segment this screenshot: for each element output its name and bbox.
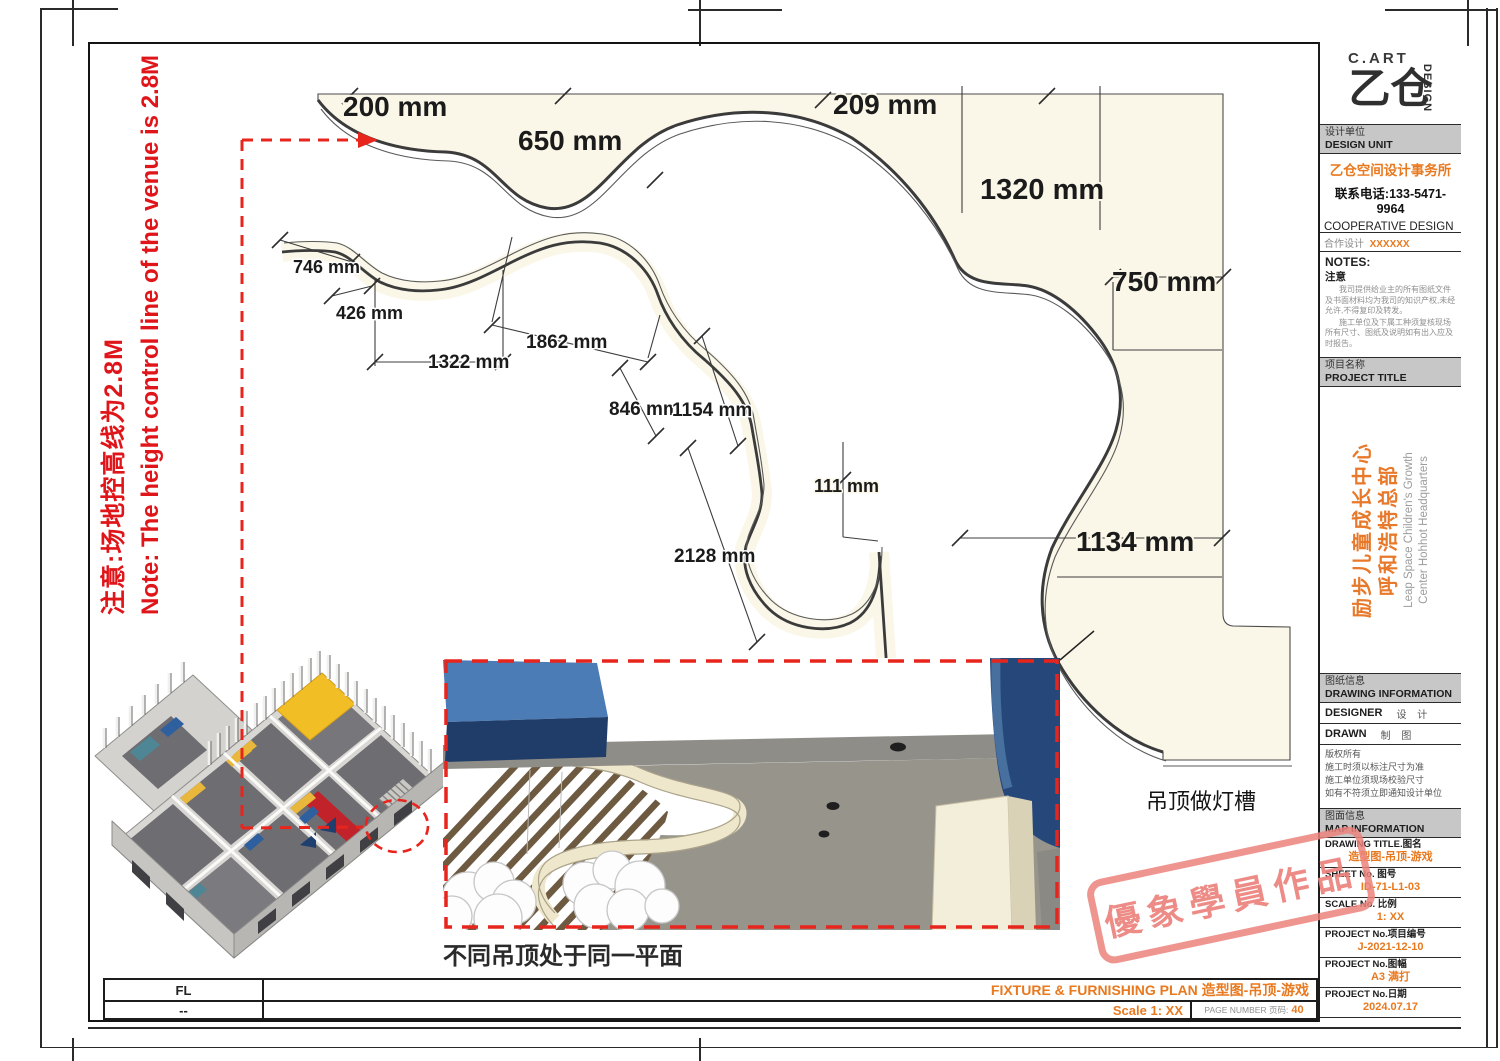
dimension-label: 2128 mm — [674, 546, 755, 567]
project-name-zh: 励步儿童成长中心 — [1350, 380, 1376, 680]
page-number-label: PAGE NUMBER 页码: — [1204, 1004, 1288, 1016]
logo-glyph: 乙仓 — [1320, 67, 1461, 111]
design-unit-zh: 设计单位 — [1325, 127, 1456, 139]
design-unit-info: 乙仓空间设计事务所 联系电话:133-5471-9964 COOPERATIVE… — [1320, 154, 1461, 233]
note-line-zh: 注意:场地控高线为2.8M — [96, 55, 133, 615]
project-name-en: Center Hohhot Headquarters — [1417, 380, 1432, 680]
notes-section: NOTES: 注意 我司提供给业主的所有图纸文件及书面材料均为我司的知识产权,未… — [1320, 252, 1461, 357]
height-control-note: 注意:场地控高线为2.8M Note: The height control l… — [96, 55, 172, 617]
empty-row — [1320, 233, 1461, 252]
project-title: 励步儿童成长中心 呼和浩特总部 Leap Space Children's Gr… — [1320, 387, 1461, 673]
dimension-label: 209 mm — [833, 89, 937, 120]
dimension-label: 1320 mm — [980, 174, 1104, 206]
notes-paragraph: 我司提供给业主的所有图纸文件及书面材料均为我司的知识产权,未经允许,不得复印及转… — [1325, 285, 1456, 317]
level-dash: -- — [105, 1002, 264, 1018]
logo-text-design: DESIGN — [1421, 64, 1433, 112]
drawn-row: DRAWN制 图 — [1320, 724, 1461, 745]
company-name: 乙仓空间设计事务所 — [1324, 159, 1457, 179]
design-unit-en: DESIGN UNIT — [1325, 139, 1456, 151]
paper-size-row: PROJECT No.图幅 A3 满打 — [1320, 958, 1461, 988]
floorplan-3d-view — [95, 651, 444, 958]
dimension-label: 426 mm — [336, 303, 403, 323]
page-number-value: 40 — [1291, 1004, 1303, 1016]
phone-number: 联系电话:133-5471-9964 — [1324, 183, 1457, 216]
dimension-label: 846 mm — [609, 399, 680, 420]
map-info-zh: 图面信息 — [1325, 811, 1456, 823]
copyright-notes: 版权所有 施工时须以标注尺寸为准 施工单位须现场校验尺寸 如有不符须立即通知设计… — [1320, 745, 1461, 808]
light-trough-label: 吊顶做灯槽 — [1146, 784, 1256, 816]
project-name-en: Leap Space Children's Growth — [1402, 380, 1417, 680]
project-no-row: PROJECT No.项目编号 J-2021-12-10 — [1320, 928, 1461, 958]
note-line-en: Note: The height control line of the ven… — [133, 55, 169, 615]
drawing-info-en: DRAWING INFORMATION — [1325, 688, 1456, 700]
column — [932, 796, 1036, 932]
company-logo: C.ART 乙仓 DESIGN — [1320, 42, 1461, 124]
dimension-label: 200 mm — [343, 91, 447, 122]
dimension-label: 111 mm — [814, 476, 879, 496]
page-number-cell: PAGE NUMBER 页码: 40 — [1190, 1002, 1316, 1018]
notes-title-en: NOTES: — [1325, 255, 1456, 269]
project-label-zh: 项目名称 — [1325, 360, 1456, 372]
dimension-label: 1134 mm — [1076, 526, 1194, 557]
blue-box — [443, 660, 608, 762]
date-row: PROJECT No.日期 2024.07.17 — [1320, 988, 1461, 1018]
same-plane-label: 不同吊顶处于同一平面 — [443, 936, 683, 971]
dimension-label: 750 mm — [1112, 266, 1216, 297]
ceiling-detail-render — [356, 658, 1060, 942]
dimension-label: 1322 mm — [428, 352, 509, 373]
notes-paragraph: 施工单位及下属工种须复核现场所有尺寸、图纸及说明如有出入应及时报告。 — [1325, 318, 1456, 350]
plan-title: FIXTURE & FURNISHING PLAN 造型图-吊顶-游戏 — [264, 980, 1316, 1000]
project-name-zh: 呼和浩特总部 — [1376, 380, 1402, 680]
level-label: FL — [105, 980, 264, 1000]
dimension-label: 746 mm — [293, 257, 360, 277]
dimension-label: 650 mm — [518, 125, 622, 156]
designer-row: DESIGNER设 计 — [1320, 703, 1461, 724]
cooperative-design-en: COOPERATIVE DESIGN — [1324, 221, 1457, 233]
bottom-title-bar: FL FIXTURE & FURNISHING PLAN 造型图-吊顶-游戏 -… — [103, 978, 1318, 1020]
scale-label: Scale 1: XX — [264, 1002, 1190, 1018]
dimension-label: 1862 mm — [526, 332, 607, 353]
dimension-label: 1154 mm — [672, 400, 752, 421]
notes-title-zh: 注意 — [1325, 269, 1456, 284]
design-unit-header: 设计单位 DESIGN UNIT — [1320, 124, 1461, 154]
